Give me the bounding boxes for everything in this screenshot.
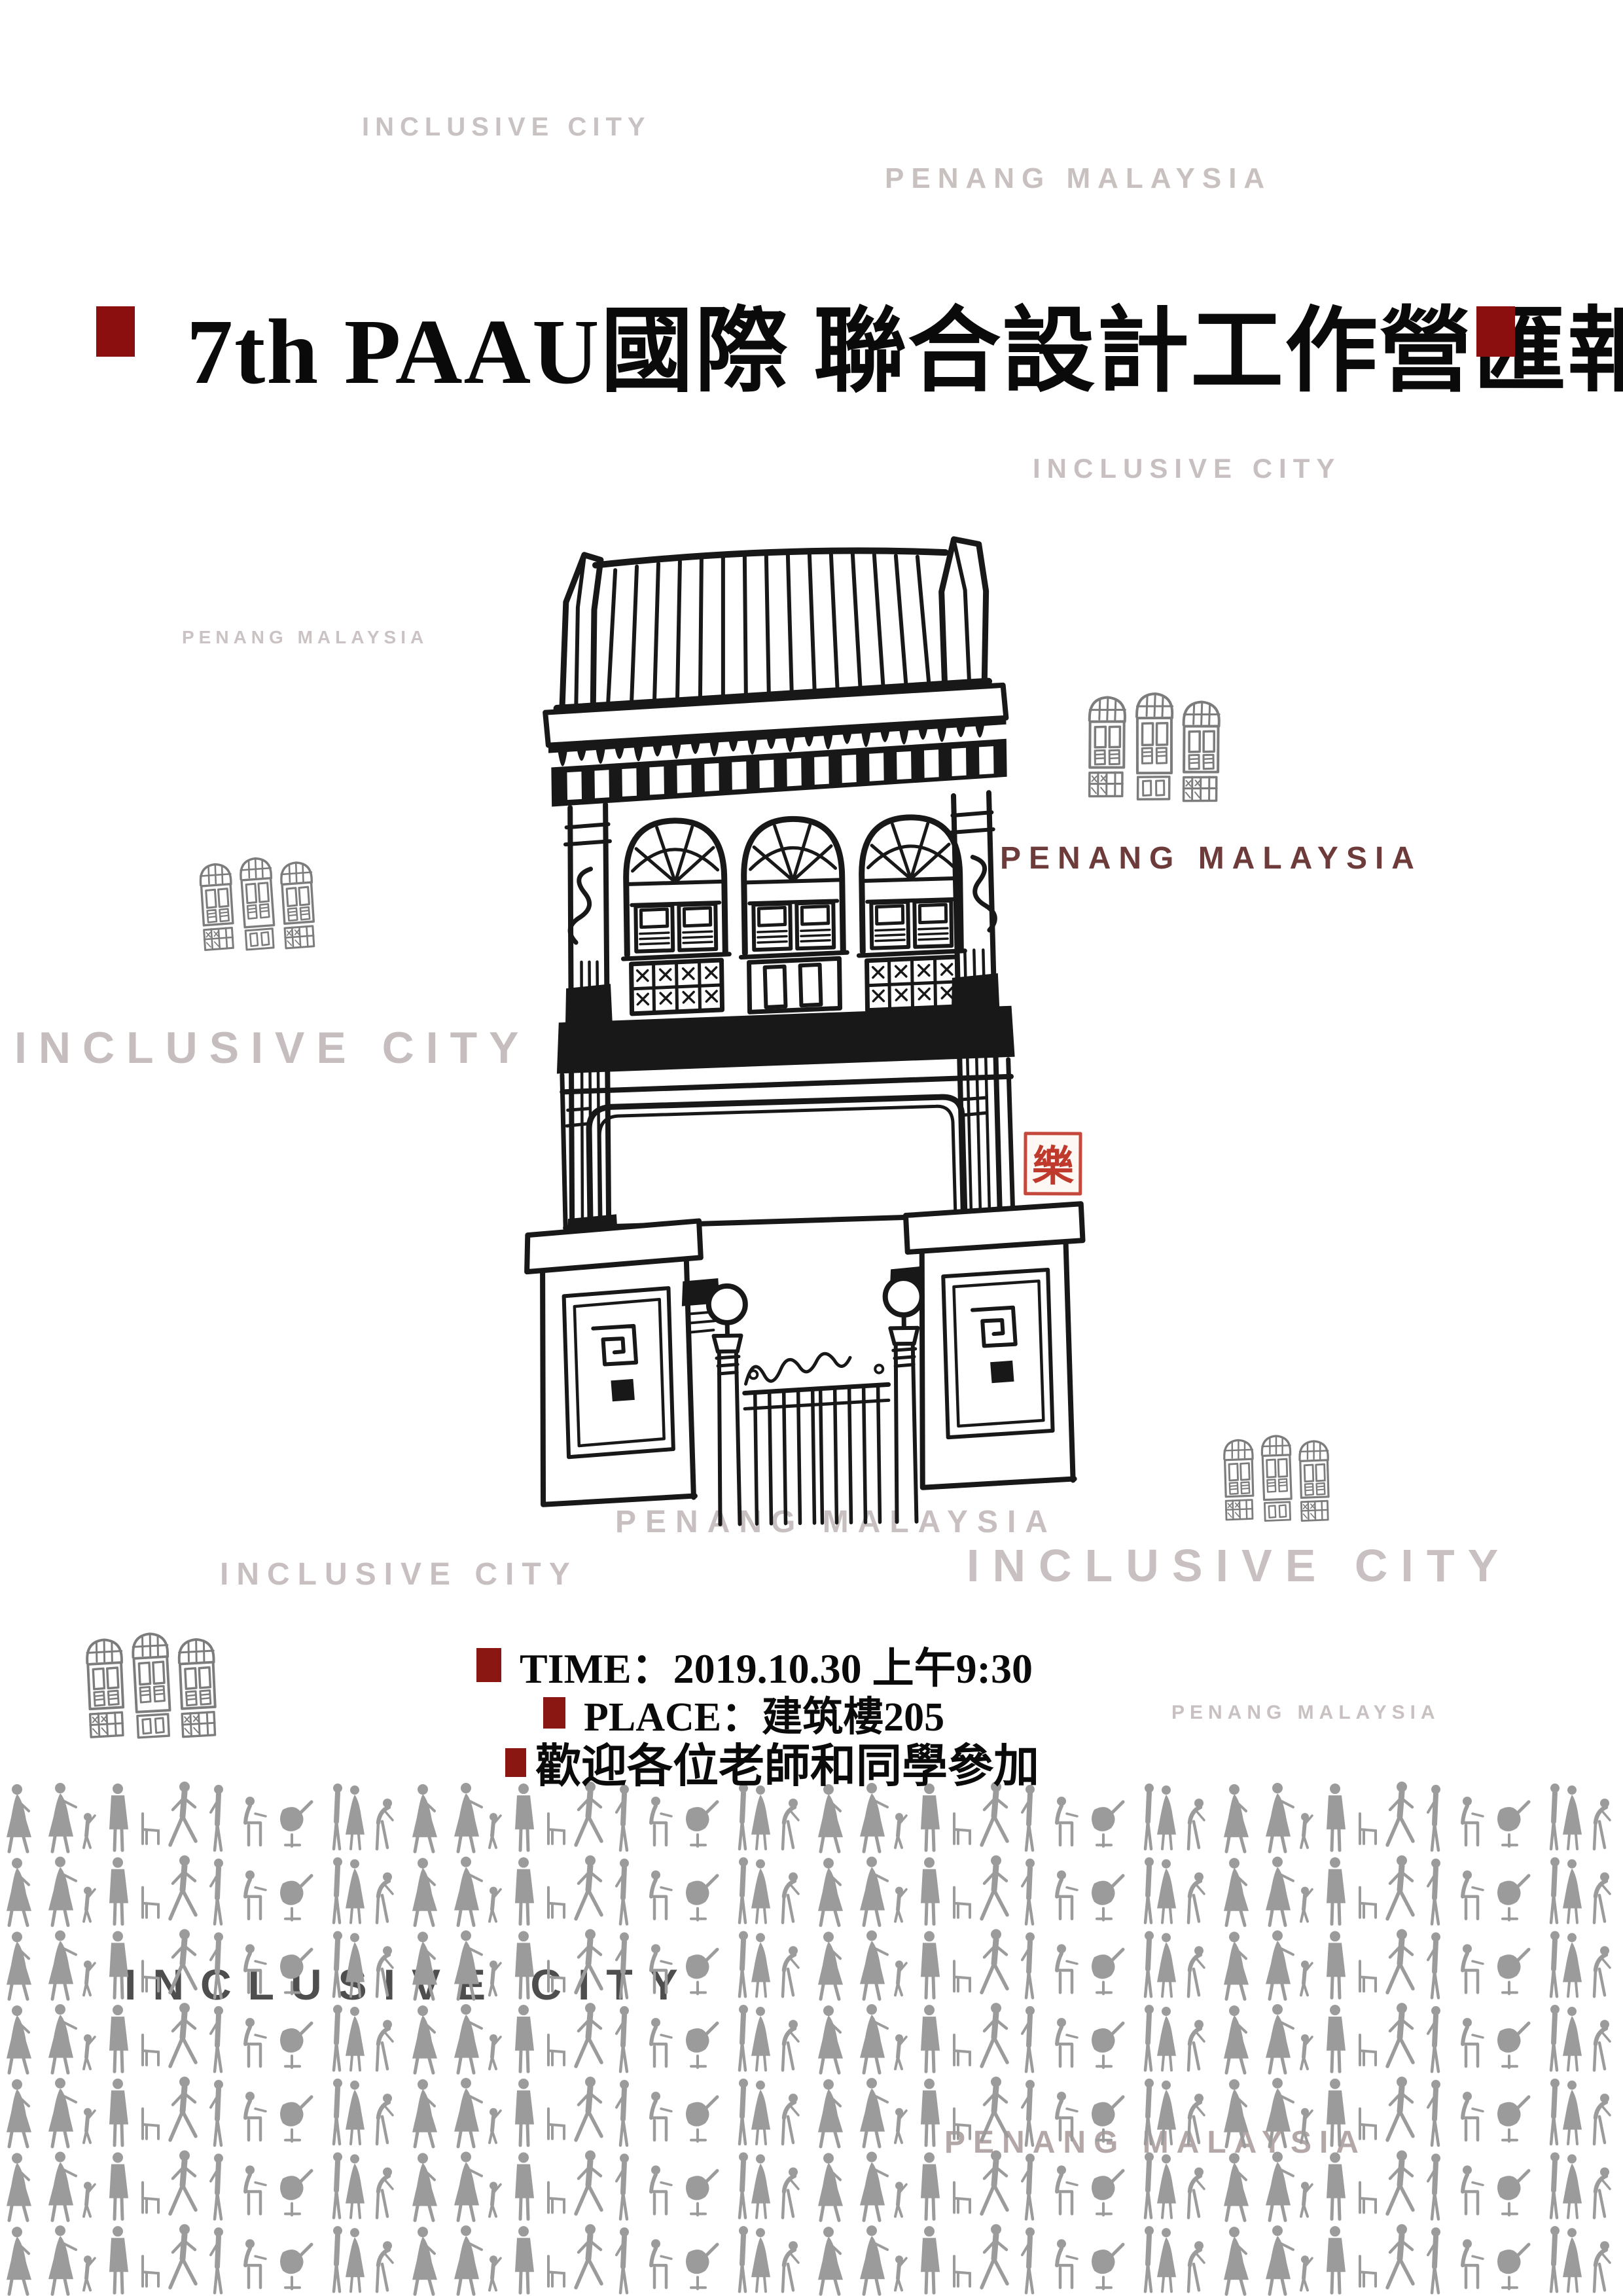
watermark-inclusive-city-big-left: INCLUSIVE CITY (14, 1022, 531, 1073)
arched-window (622, 820, 730, 1014)
poster-page: INCLUSIVE CITY PENANG MALAYSIA INCLUSIVE… (0, 0, 1623, 2296)
roof (543, 539, 1007, 745)
poster-title: 7th PAAU國際 聯合設計工作營匯報 (187, 275, 1623, 410)
watermark-penang-malaysia-small-right: PENANG MALAYSIA (1171, 1702, 1440, 1724)
watermark-inclusive-city-upper: INCLUSIVE CITY (1033, 453, 1341, 484)
people-silhouettes-pattern (0, 1780, 1623, 2296)
three-windows-stamp-icon (194, 851, 319, 953)
seal-character: 樂 (1032, 1143, 1075, 1190)
event-welcome-line: 歡迎各位老師和同學參加 (505, 1729, 1039, 1795)
penang-shophouse-illustration: 樂 (524, 533, 1099, 1528)
gate-and-pillars (526, 1204, 1087, 1527)
title-accent-square-right (1476, 306, 1515, 357)
event-welcome-text: 歡迎各位老師和同學參加 (535, 1729, 1039, 1795)
watermark-inclusive-city-top: INCLUSIVE CITY (362, 113, 651, 142)
red-square-bullet (543, 1697, 565, 1729)
watermark-penang-malaysia-left: PENANG MALAYSIA (182, 627, 428, 648)
penang-malaysia-highlight: PENANG MALAYSIA (1000, 840, 1422, 876)
three-windows-stamp-icon (82, 1614, 219, 1753)
three-windows-stamp-icon (1081, 685, 1226, 804)
floor-beam (556, 1006, 1016, 1092)
red-square-bullet (476, 1648, 501, 1682)
three-windows-stamp-icon (1221, 1424, 1331, 1529)
arched-window (739, 818, 847, 1012)
title-accent-square-left (96, 306, 135, 357)
seal-stamp: 樂 (1026, 1134, 1080, 1194)
red-square-bullet (505, 1748, 526, 1777)
arched-window (857, 817, 965, 1011)
watermark-inclusive-city-big-right: INCLUSIVE CITY (967, 1539, 1511, 1592)
watermark-penang-malaysia-top: PENANG MALAYSIA (885, 162, 1272, 195)
watermark-inclusive-city-small-left: INCLUSIVE CITY (220, 1556, 578, 1592)
